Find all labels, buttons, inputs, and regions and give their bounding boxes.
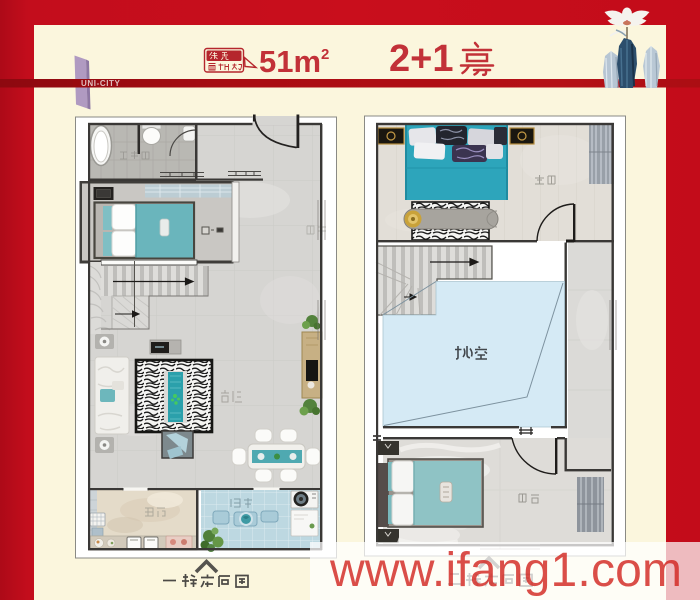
svg-text:2+1: 2+1 [389, 38, 453, 80]
svg-text:51m: 51m [259, 44, 321, 79]
svg-text:www.ifang1.com: www.ifang1.com [329, 544, 682, 597]
svg-text:2: 2 [321, 46, 329, 63]
svg-text:UNI-CITY: UNI-CITY [81, 79, 121, 88]
